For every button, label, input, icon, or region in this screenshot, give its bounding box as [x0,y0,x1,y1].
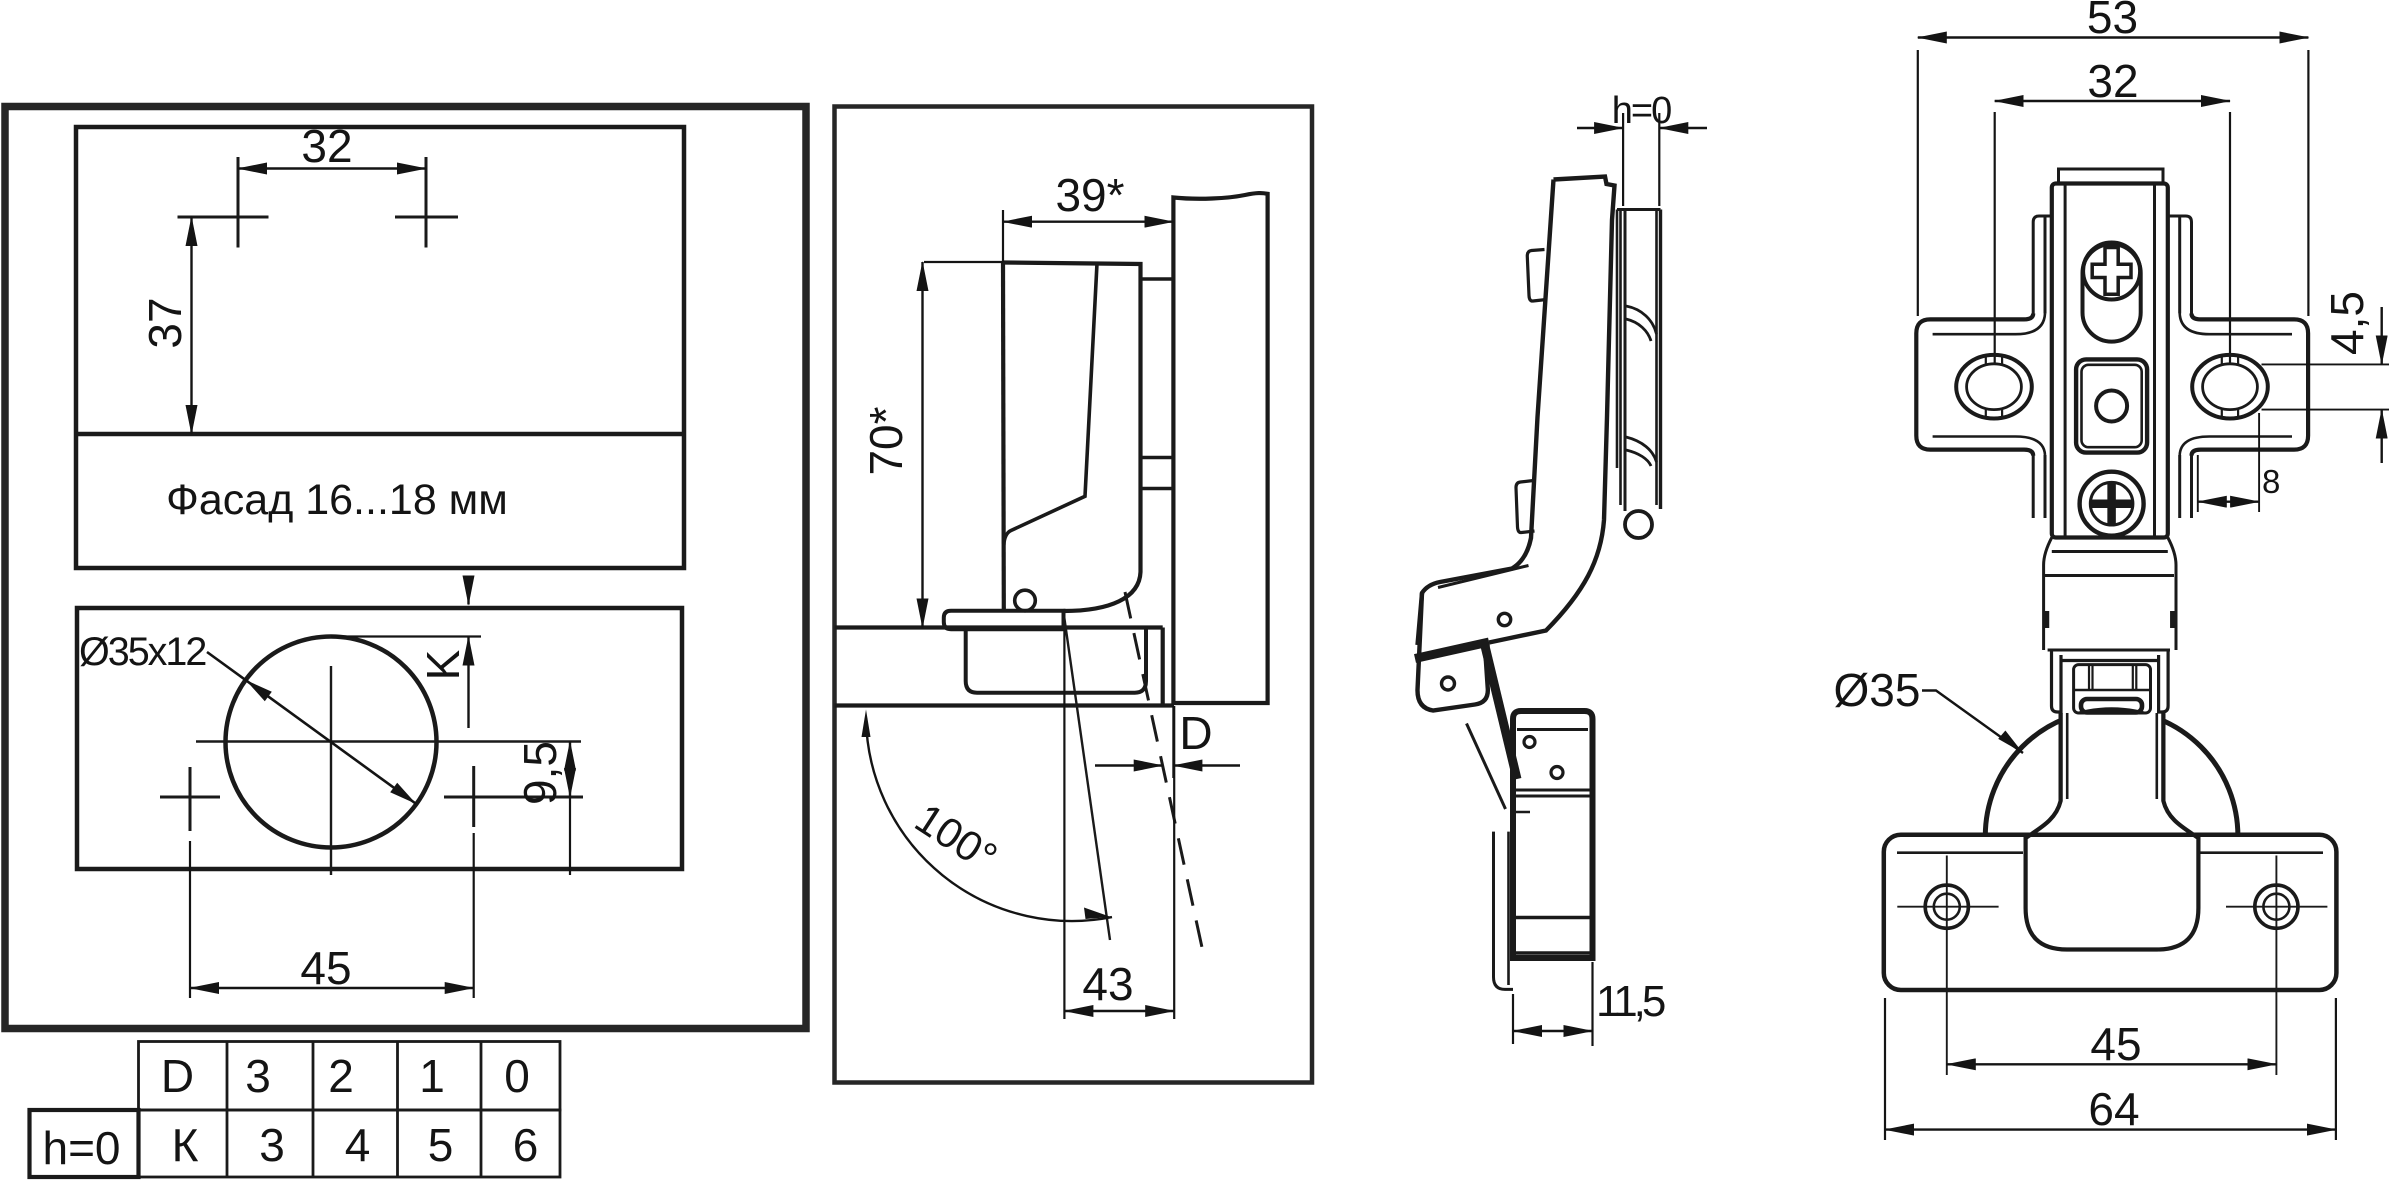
svg-text:70*: 70* [860,406,912,475]
svg-text:45: 45 [2090,1018,2141,1070]
svg-text:9,5: 9,5 [514,741,566,805]
svg-text:32: 32 [301,120,352,172]
svg-text:2: 2 [328,1050,354,1102]
svg-text:3: 3 [259,1119,285,1171]
svg-text:8: 8 [2262,463,2280,500]
svg-text:4: 4 [345,1119,371,1171]
svg-text:1: 1 [419,1050,445,1102]
svg-text:h=0: h=0 [42,1122,120,1174]
svg-text:4,5: 4,5 [2321,291,2373,355]
svg-text:6: 6 [513,1119,539,1171]
svg-text:64: 64 [2088,1083,2139,1135]
svg-text:45: 45 [300,942,351,994]
svg-text:37: 37 [139,297,191,348]
svg-text:D: D [1179,707,1212,759]
svg-text:K: K [417,649,469,680]
svg-text:D: D [161,1050,194,1102]
svg-text:53: 53 [2087,0,2138,43]
svg-text:11,5: 11,5 [1596,977,1665,1026]
svg-text:Ø35: Ø35 [1834,664,1921,716]
svg-text:43: 43 [1082,958,1133,1010]
svg-text:0: 0 [504,1050,530,1102]
svg-text:Фасад 16...18 мм: Фасад 16...18 мм [166,476,508,524]
svg-text:39*: 39* [1055,169,1124,221]
svg-text:5: 5 [428,1119,454,1171]
svg-text:Ø35x12: Ø35x12 [79,630,205,674]
svg-text:3: 3 [245,1050,271,1102]
svg-text:h=0: h=0 [1612,90,1671,132]
svg-text:32: 32 [2087,55,2138,107]
svg-text:К: К [172,1119,199,1171]
